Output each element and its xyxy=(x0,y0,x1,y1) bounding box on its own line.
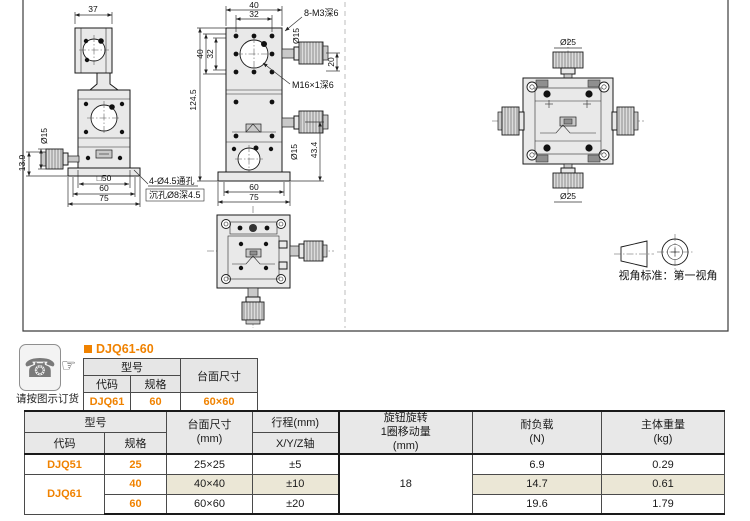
order-header-surface: 台面尺寸 xyxy=(181,359,258,393)
header-weight: 主体重量 (kg) xyxy=(602,411,725,454)
header-surface-l1: 台面尺寸 xyxy=(167,419,252,433)
dim-square-50: □50 xyxy=(97,173,112,183)
header-surface-size: 台面尺寸 (mm) xyxy=(167,411,253,454)
first-angle-projection-icon: 视角标准：第一视角 xyxy=(614,234,718,282)
header-load-l1: 耐负载 xyxy=(473,419,601,433)
header-spec: 规格 xyxy=(105,433,167,455)
row-weight: 0.61 xyxy=(602,474,725,494)
dim-knob-diameter: Ø15 xyxy=(39,128,49,144)
cone-icon xyxy=(614,241,654,267)
technical-drawing-area: 37 xyxy=(0,0,750,332)
row-weight: 0.29 xyxy=(602,454,725,474)
dim-mid-knob-dia: Ø15 xyxy=(289,144,299,160)
order-header-code: 代码 xyxy=(84,376,131,393)
dim-base-75: 75 xyxy=(99,193,109,203)
dim-bottom-knob-dia-25: Ø25 xyxy=(560,191,576,201)
dim-knob-height: 13.9 xyxy=(17,154,27,171)
spec-table-wrap: 型号 台面尺寸 (mm) 行程(mm) 旋钮旋转 1圈移动量 (mm) 耐负载 … xyxy=(24,410,725,515)
phone-order-icon-box: ☎ xyxy=(19,344,61,391)
dim-top-width: 37 xyxy=(88,4,98,14)
callout-8-m3: 8-M3深6 xyxy=(304,8,339,18)
row-weight: 1.79 xyxy=(602,494,725,514)
header-surface-l2: (mm) xyxy=(167,433,252,447)
row-surface: 40×40 xyxy=(167,474,253,494)
header-knob-l3: (mm) xyxy=(340,440,473,454)
dim-front-base-75: 75 xyxy=(249,192,259,202)
callout-m16: M16×1深6 xyxy=(292,80,334,90)
target-icon xyxy=(657,234,693,270)
top-view-drawing xyxy=(207,206,334,328)
plan-view-drawing: Ø25 xyxy=(492,37,644,202)
header-travel: 行程(mm) xyxy=(253,411,339,433)
header-knob-rotation: 旋钮旋转 1圈移动量 (mm) xyxy=(339,411,473,454)
row-code: DJQ61 xyxy=(25,474,105,514)
order-header-model: 型号 xyxy=(84,359,181,376)
catalog-page: 37 xyxy=(0,0,750,521)
square-bullet-icon xyxy=(84,345,92,353)
row-surface: 60×60 xyxy=(167,494,253,514)
row-load: 14.7 xyxy=(473,474,602,494)
row-spec: 40 xyxy=(105,474,167,494)
header-knob-l1: 旋钮旋转 xyxy=(340,412,473,426)
dim-base-60: 60 xyxy=(99,183,109,193)
row-travel: ±20 xyxy=(253,494,339,514)
pointing-finger-icon: ☞ xyxy=(61,356,76,376)
dim-total-height: 124.5 xyxy=(188,89,198,111)
order-spec-value: 60 xyxy=(131,393,181,412)
row-code: DJQ51 xyxy=(25,454,105,474)
order-code-value: DJQ61 xyxy=(84,393,131,412)
side-view-drawing: 37 xyxy=(17,4,204,207)
telephone-icon: ☎ xyxy=(24,355,56,381)
row-spec: 60 xyxy=(105,494,167,514)
order-surface-value: 60×60 xyxy=(181,393,258,412)
header-weight-l2: (kg) xyxy=(602,433,724,447)
spec-table: 型号 台面尺寸 (mm) 行程(mm) 旋钮旋转 1圈移动量 (mm) 耐负载 … xyxy=(24,410,725,515)
product-title: DJQ61-60 xyxy=(84,342,154,356)
product-title-text: DJQ61-60 xyxy=(96,342,154,356)
callout-counterbore: 沉孔Ø8深4.5 xyxy=(149,190,201,200)
callout-through-holes: 4-Ø4.5通孔 xyxy=(149,176,195,186)
dim-top-32: 32 xyxy=(249,9,259,19)
row-spec: 25 xyxy=(105,454,167,474)
header-weight-l1: 主体重量 xyxy=(602,419,724,433)
front-view-drawing: 124.5 40 32 40 32 xyxy=(188,0,340,206)
ordering-table: 型号 台面尺寸 代码 规格 DJQ61 60 60×60 xyxy=(83,358,258,412)
order-header-spec: 规格 xyxy=(131,376,181,393)
header-knob-l2: 1圈移动量 xyxy=(340,426,473,440)
header-model: 型号 xyxy=(25,411,167,433)
header-code: 代码 xyxy=(25,433,105,455)
dim-top-knob-dia-25: Ø25 xyxy=(560,37,576,47)
row-travel: ±5 xyxy=(253,454,339,474)
row-load: 19.6 xyxy=(473,494,602,514)
row-travel: ±10 xyxy=(253,474,339,494)
header-load-l2: (N) xyxy=(473,433,601,447)
row-surface: 25×25 xyxy=(167,454,253,474)
dim-side-32: 32 xyxy=(205,49,215,59)
dim-knob-height-43-4: 43.4 xyxy=(309,141,319,158)
header-travel-axis: X/Y/Z轴 xyxy=(253,433,339,455)
view-standard-label: 视角标准：第一视角 xyxy=(619,268,718,282)
knob-travel-per-turn-value: 18 xyxy=(339,454,473,514)
dim-knob-offset-20: 20 xyxy=(326,57,336,67)
row-load: 6.9 xyxy=(473,454,602,474)
order-note: 请按图示订货 xyxy=(16,391,79,406)
header-load: 耐负载 (N) xyxy=(473,411,602,454)
dim-side-40: 40 xyxy=(195,49,205,59)
dim-front-base-60: 60 xyxy=(249,182,259,192)
